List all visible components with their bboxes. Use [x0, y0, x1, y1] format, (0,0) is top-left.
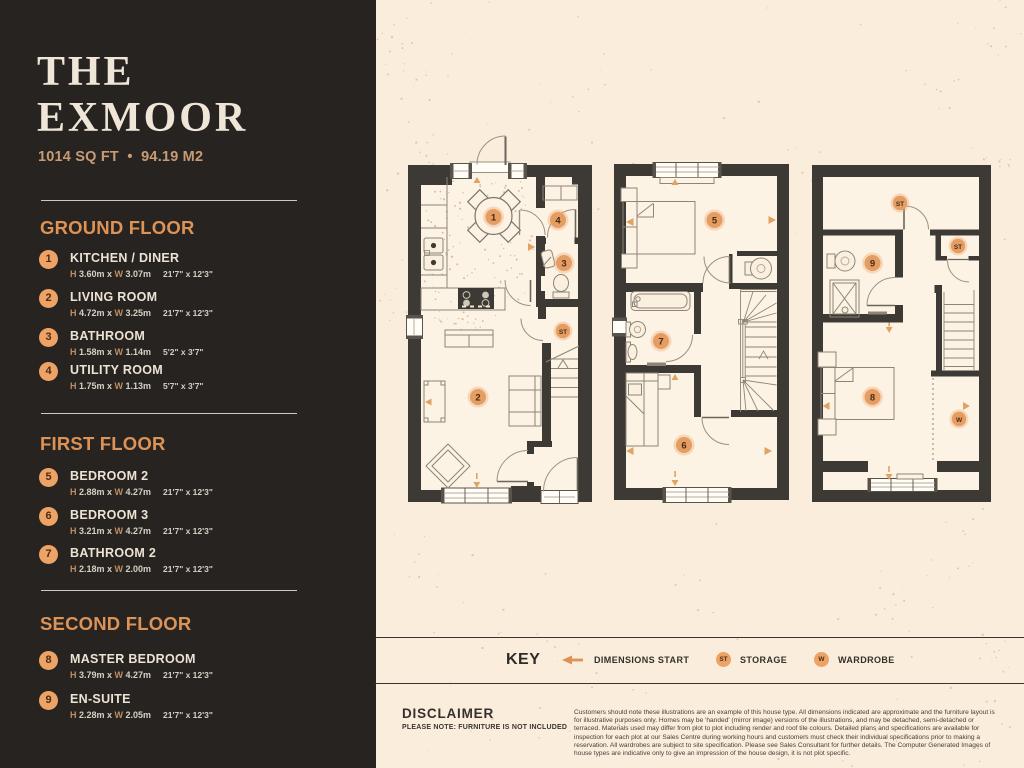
- svg-text:5: 5: [712, 215, 718, 226]
- svg-text:1: 1: [491, 212, 497, 223]
- svg-text:W: W: [956, 417, 963, 424]
- svg-text:7: 7: [658, 336, 663, 347]
- svg-text:ST: ST: [896, 201, 904, 208]
- svg-text:8: 8: [870, 392, 875, 403]
- svg-text:6: 6: [681, 440, 686, 451]
- svg-text:ST: ST: [954, 244, 962, 251]
- svg-text:2: 2: [475, 392, 480, 403]
- svg-text:4: 4: [555, 215, 561, 226]
- svg-text:ST: ST: [559, 329, 567, 336]
- svg-text:3: 3: [561, 258, 566, 269]
- svg-text:9: 9: [870, 258, 875, 269]
